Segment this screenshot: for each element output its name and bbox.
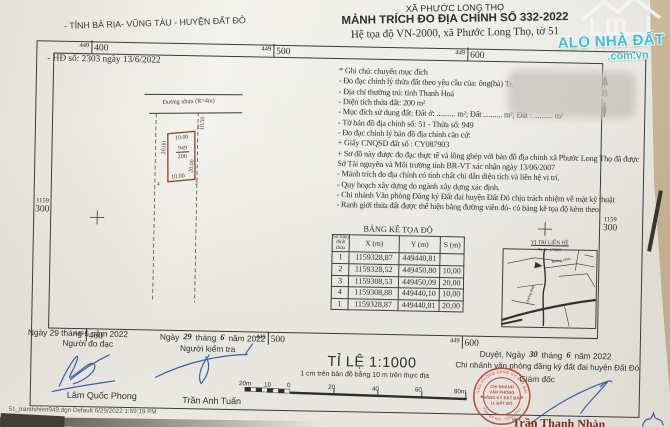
dim-top: 10.00: [175, 134, 189, 141]
scale-tick: 60: [415, 387, 422, 394]
photo-shadow-corner: [0, 413, 65, 427]
checker-date: Ngày 29 tháng 6 năm 2022: [160, 332, 266, 344]
checker-role: Người kiểm tra: [158, 343, 258, 355]
scale-tick: 10: [264, 381, 271, 388]
dim-gap: 10.50: [200, 117, 207, 131]
sheet-body: 449400 449500 449600 449400 449500 44960…: [0, 0, 670, 427]
parcel-area: 200: [178, 154, 187, 160]
table-row: 11159328,87449440,8120,00: [331, 298, 463, 312]
grid-label: 449500: [261, 44, 290, 58]
parcel-number: 949: [176, 145, 189, 153]
grid-label: 1159 300: [33, 198, 51, 214]
approver-name: Trần Thanh Nhàn: [491, 415, 626, 427]
scale-tick: 20: [328, 383, 335, 390]
grid-label: 449400: [79, 40, 108, 54]
parcel-corner-2: 2: [197, 124, 200, 130]
approver-role: Giám đốc: [497, 373, 577, 385]
surveyor-role: Người đo đạc: [38, 337, 138, 349]
scale-tick: 80m: [454, 388, 466, 395]
parcel-corner-3: 3: [195, 180, 198, 186]
vicinity-road-label: Đường nhựa: [551, 257, 571, 265]
grid-label: 449600: [450, 335, 479, 349]
coords-table: Số hiệu đỉnh thửa X (m) Y (m) S (m) 1115…: [330, 234, 464, 313]
vicinity-map: VỊ TRÍ LIÊN HỆ Tỷ lệ: 1/5000 Đường nhựa …: [501, 248, 597, 329]
parcel-corner-4: 4: [157, 182, 160, 188]
scale-tick: 40: [372, 385, 379, 392]
vicinity-road-label: Đường nhựa: [525, 284, 535, 303]
grid-label: 449600: [455, 47, 484, 61]
contract-number: - HĐ số: 2303 ngày 13/6/2022: [47, 53, 161, 65]
document-photo: - TỈNH BÀ RỊA- VŨNG TÀU - HUYỆN ĐẤT ĐỎ X…: [0, 0, 670, 427]
scale-tick: 0: [287, 382, 291, 389]
map-scale-title: TỈ LỆ 1:1000: [327, 354, 416, 372]
privacy-blur: [507, 69, 636, 118]
grid-label: 1159 300: [601, 217, 619, 233]
vicinity-scale: Tỷ lệ: 1/5000: [518, 247, 582, 253]
dim-left: 20.00: [161, 141, 168, 155]
scale-tick: 20m: [239, 380, 251, 387]
